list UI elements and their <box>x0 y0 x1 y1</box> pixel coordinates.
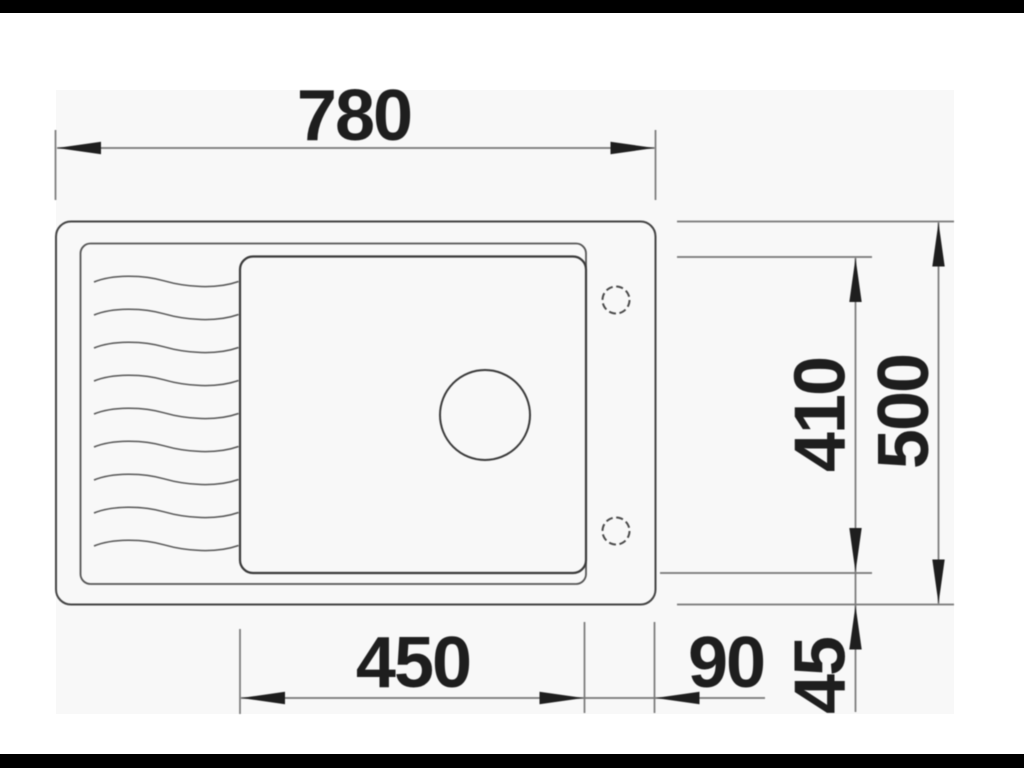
svg-text:450: 450 <box>356 623 470 703</box>
svg-text:90: 90 <box>688 623 764 703</box>
svg-text:780: 780 <box>297 76 411 156</box>
svg-text:45: 45 <box>781 637 861 714</box>
svg-text:500: 500 <box>864 355 944 469</box>
svg-text:410: 410 <box>781 358 861 472</box>
